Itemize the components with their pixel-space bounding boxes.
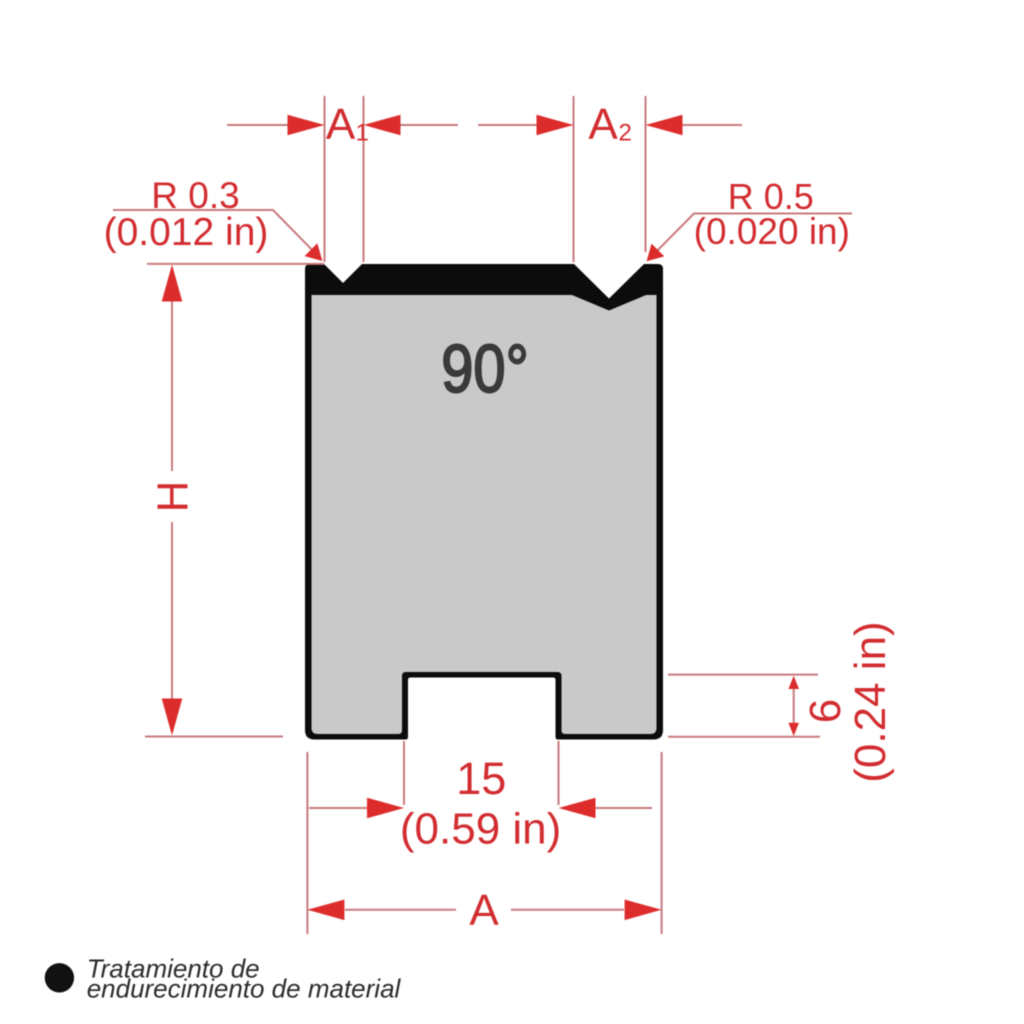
svg-text:R 0.3: R 0.3 (151, 175, 239, 216)
svg-text:H: H (149, 481, 198, 513)
svg-text:15: 15 (456, 753, 506, 804)
svg-text:(0.020 in): (0.020 in) (694, 211, 850, 252)
svg-text:A: A (588, 100, 618, 149)
svg-text:(0.24 in): (0.24 in) (846, 621, 895, 782)
svg-text:endurecimiento de material: endurecimiento de material (87, 974, 402, 1004)
svg-text:2: 2 (619, 120, 632, 147)
svg-text:(0.012 in): (0.012 in) (104, 211, 269, 254)
svg-text:A: A (469, 886, 499, 935)
svg-text:A: A (326, 100, 356, 149)
svg-text:1: 1 (356, 120, 369, 147)
svg-text:6: 6 (801, 699, 850, 723)
svg-text:90°: 90° (441, 332, 528, 407)
svg-text:(0.59 in): (0.59 in) (400, 805, 561, 854)
